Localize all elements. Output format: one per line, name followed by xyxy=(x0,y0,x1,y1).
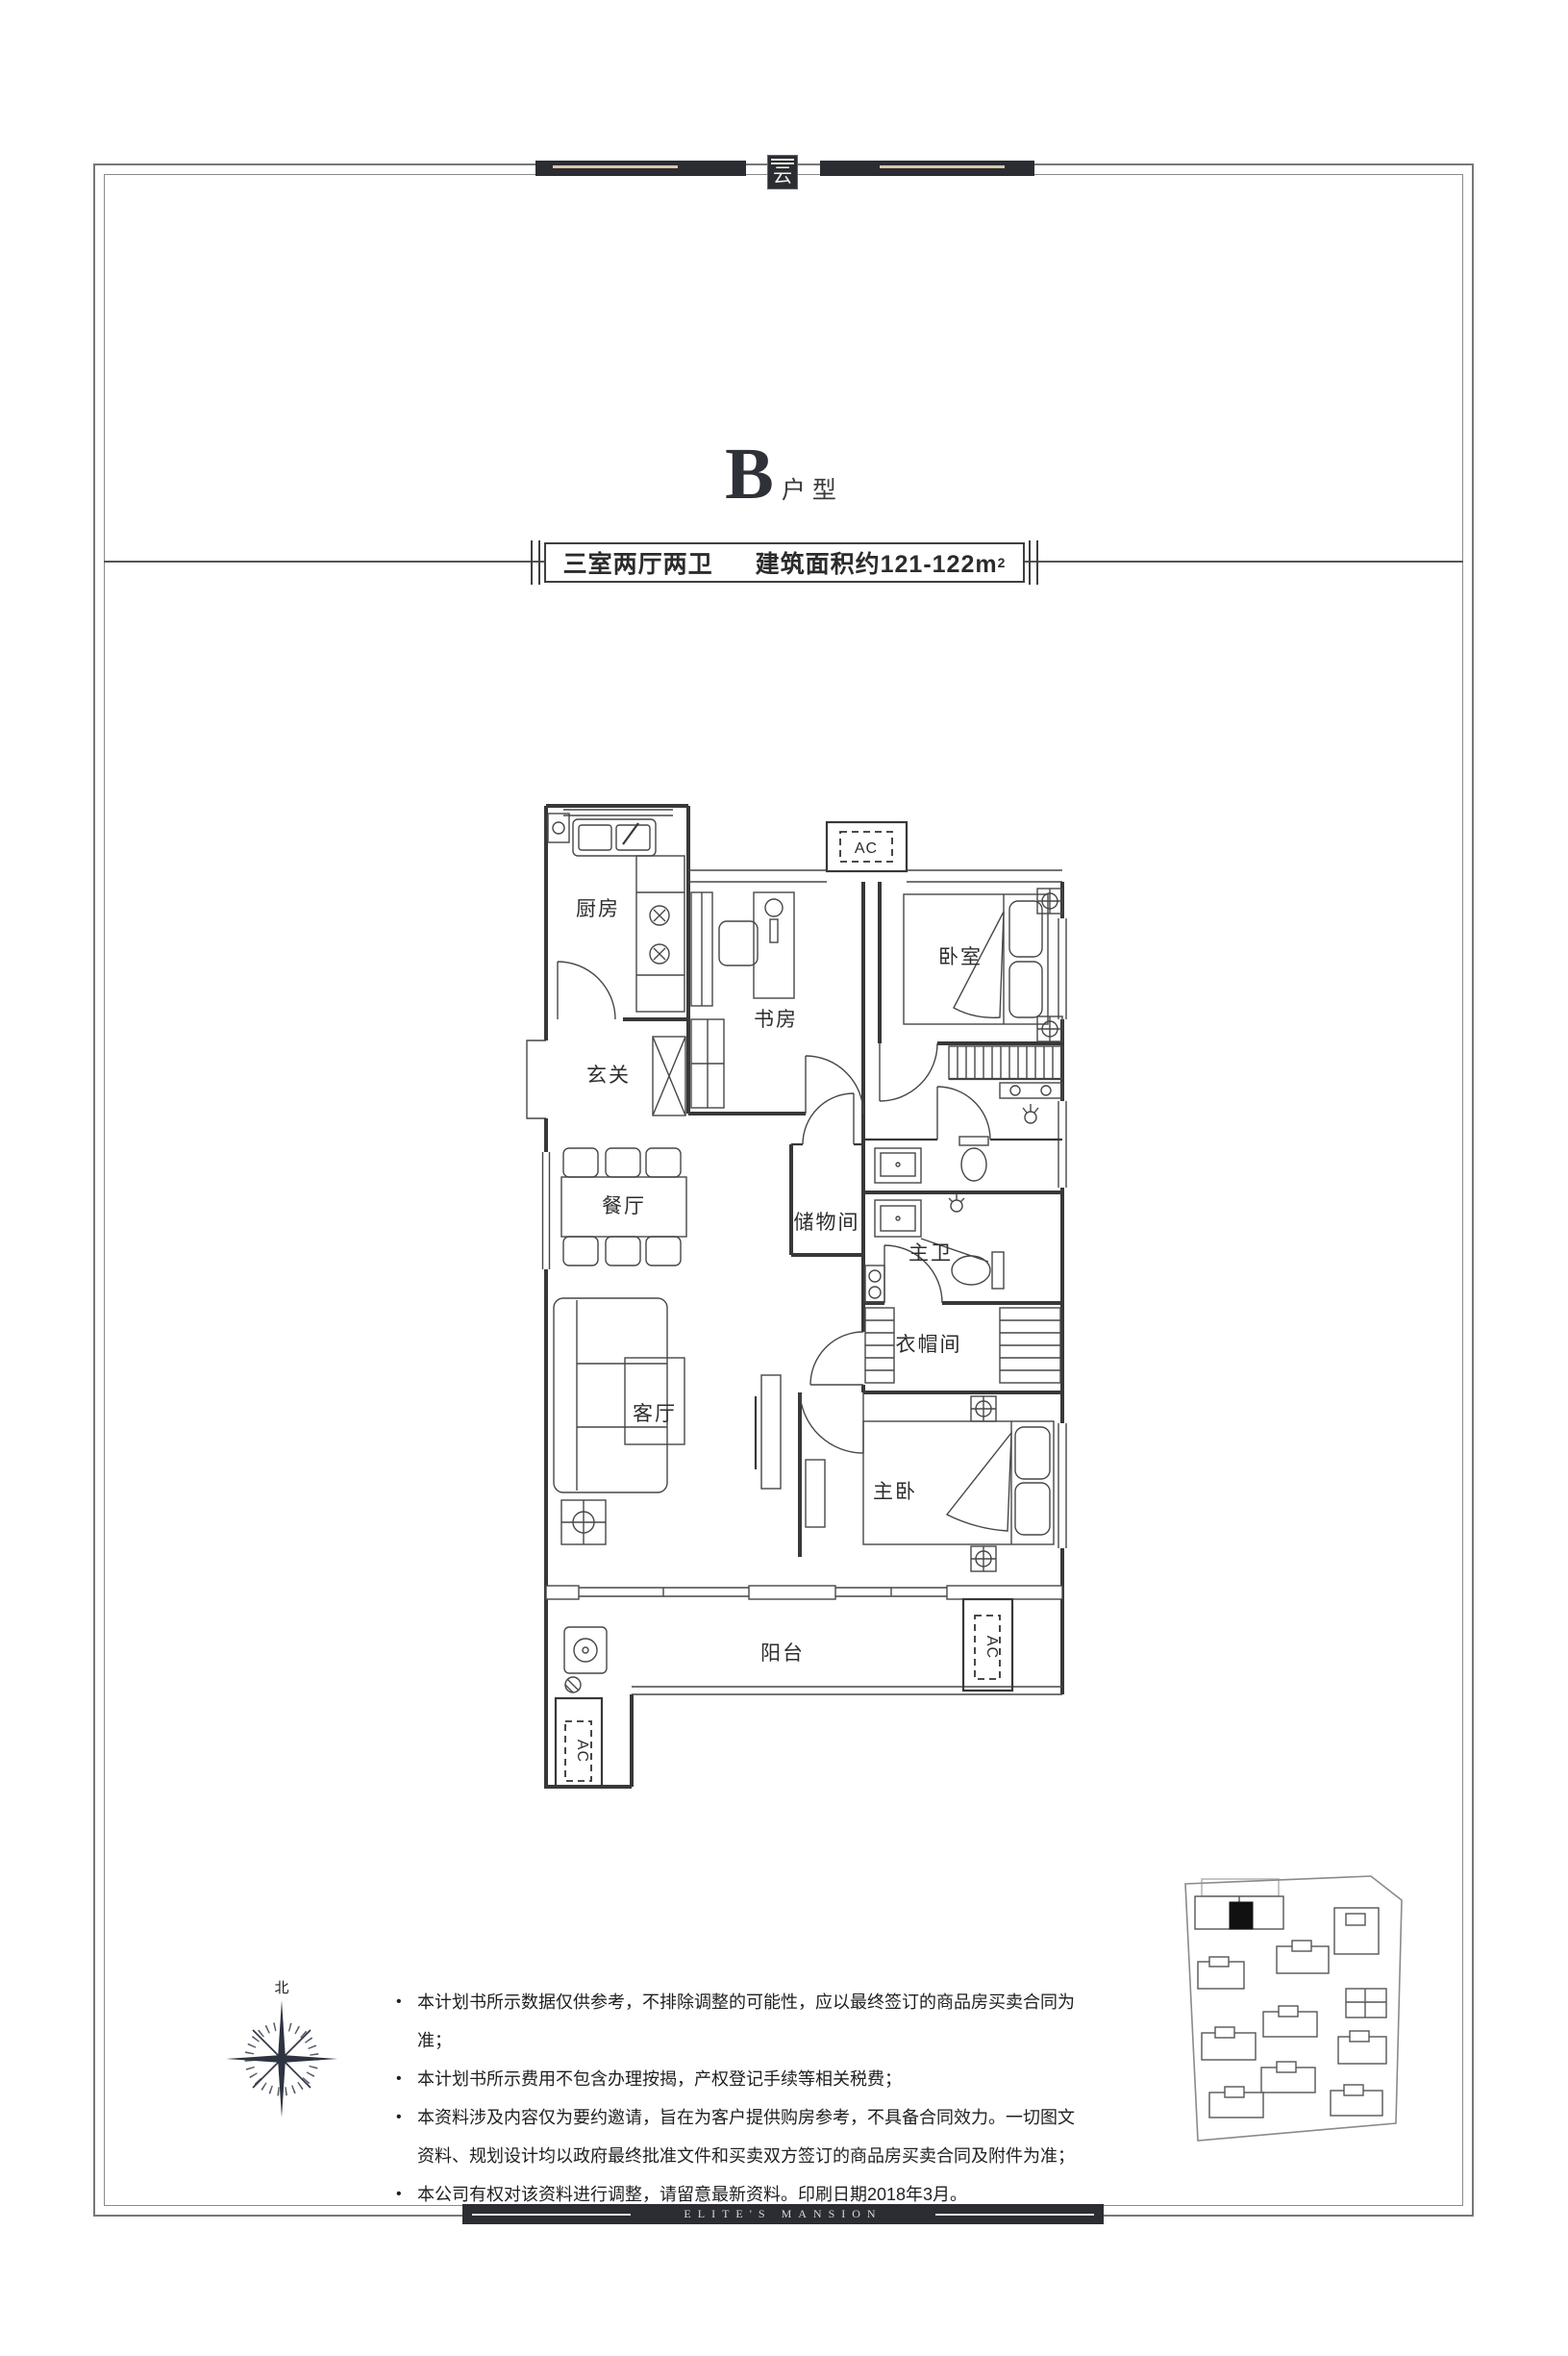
ac-unit-top: AC xyxy=(827,822,907,871)
balcony-fixtures xyxy=(564,1627,607,1692)
ac-unit-bottom-left: AC xyxy=(556,1698,602,1787)
disclaimer-text: 本计划书所示费用不包含办理按揭，产权登记手续等相关税费； xyxy=(417,2060,1079,2098)
spec-side-ornament xyxy=(1029,540,1038,585)
room-label-closet: 衣帽间 xyxy=(896,1334,962,1356)
disclaimer-list: • 本计划书所示数据仅供参考，不排除调整的可能性，应以最终签订的商品房买卖合同为… xyxy=(396,1983,1079,2214)
badge-line xyxy=(771,159,794,161)
top-left-bar xyxy=(535,161,746,176)
banner-text: ELITE'S MANSION xyxy=(684,2207,882,2221)
site-plan xyxy=(1168,1861,1418,2149)
bottom-banner: ELITE'S MANSION xyxy=(462,2204,1104,2224)
top-right-bar-accent xyxy=(880,165,1005,168)
room-label-foyer: 玄关 xyxy=(586,1065,631,1087)
master-bedroom-furniture xyxy=(806,1421,1054,1544)
highlighted-building xyxy=(1230,1902,1253,1929)
top-right-bar xyxy=(820,161,1034,176)
room-label-dining: 餐厅 xyxy=(602,1195,646,1217)
room-label-master-bath: 主卫 xyxy=(908,1242,953,1265)
banner-line xyxy=(472,2214,631,2216)
room-label-bedroom: 卧室 xyxy=(938,946,983,968)
living-furniture xyxy=(554,1298,781,1492)
brand-badge-glyph: 云 xyxy=(768,164,797,188)
site-buildings xyxy=(1195,1879,1386,2118)
room-labels: 厨房 玄关 书房 卧室 餐厅 储物间 主卫 衣帽间 客厅 主卧 阳台 xyxy=(576,898,983,1665)
unit-title: B 户型 xyxy=(725,436,843,513)
unit-letter: B xyxy=(725,436,774,513)
bullet-icon: • xyxy=(396,2060,417,2098)
ac-label: AC xyxy=(574,1740,590,1763)
ac-unit-right: AC xyxy=(963,1599,1012,1691)
ac-label: AC xyxy=(983,1636,1000,1659)
disclaimer-item: • 本资料涉及内容仅为要约邀请，旨在为客户提供购房参考，不具备合同效力。一切图文… xyxy=(396,2098,1079,2175)
unit-suffix: 户型 xyxy=(782,471,843,506)
floorplan: AC AC AC xyxy=(519,789,1096,1808)
room-label-study: 书房 xyxy=(754,1009,798,1031)
bullet-icon: • xyxy=(396,1983,417,2060)
room-label-master-bedroom: 主卧 xyxy=(873,1481,917,1503)
disclaimer-item: • 本计划书所示费用不包含办理按揭，产权登记手续等相关税费； xyxy=(396,2060,1079,2098)
spec-rooms: 三室两厅两卫 xyxy=(563,545,713,580)
closet-wardrobes xyxy=(865,1308,1060,1383)
spec-area-sup: 2 xyxy=(998,555,1007,570)
compass-north-label: 北 xyxy=(274,1980,288,1996)
room-label-kitchen: 厨房 xyxy=(576,898,620,920)
compass-rose xyxy=(226,2000,337,2118)
spec-side-ornament xyxy=(531,540,540,585)
disclaimer-text: 本资料涉及内容仅为要约邀请，旨在为客户提供购房参考，不具备合同效力。一切图文资料… xyxy=(417,2098,1079,2175)
spec-box: 三室两厅两卫 建筑面积约121-122m2 xyxy=(544,542,1025,583)
bullet-icon: • xyxy=(396,2098,417,2175)
ac-label: AC xyxy=(855,840,878,857)
bullet-icon: • xyxy=(396,2175,417,2214)
banner-line xyxy=(935,2214,1094,2216)
brochure-page: 云 B 户型 三室两厅两卫 建筑面积约121-122m2 xyxy=(0,0,1568,2356)
top-left-bar-accent xyxy=(553,165,678,168)
room-label-storage: 储物间 xyxy=(794,1212,860,1234)
study-furniture xyxy=(691,892,794,1108)
brand-badge: 云 xyxy=(767,155,798,189)
bedroom-furniture xyxy=(904,894,1062,1098)
room-label-balcony: 阳台 xyxy=(760,1642,805,1665)
spec-area: 建筑面积约121-122m xyxy=(756,545,998,580)
bath-fixtures xyxy=(875,1104,1038,1183)
disclaimer-text: 本计划书所示数据仅供参考，不排除调整的可能性，应以最终签订的商品房买卖合同为准； xyxy=(417,1983,1079,2060)
compass: 北 xyxy=(214,1977,349,2121)
disclaimer-item: • 本计划书所示数据仅供参考，不排除调整的可能性，应以最终签订的商品房买卖合同为… xyxy=(396,1983,1079,2060)
room-label-living: 客厅 xyxy=(633,1403,677,1425)
